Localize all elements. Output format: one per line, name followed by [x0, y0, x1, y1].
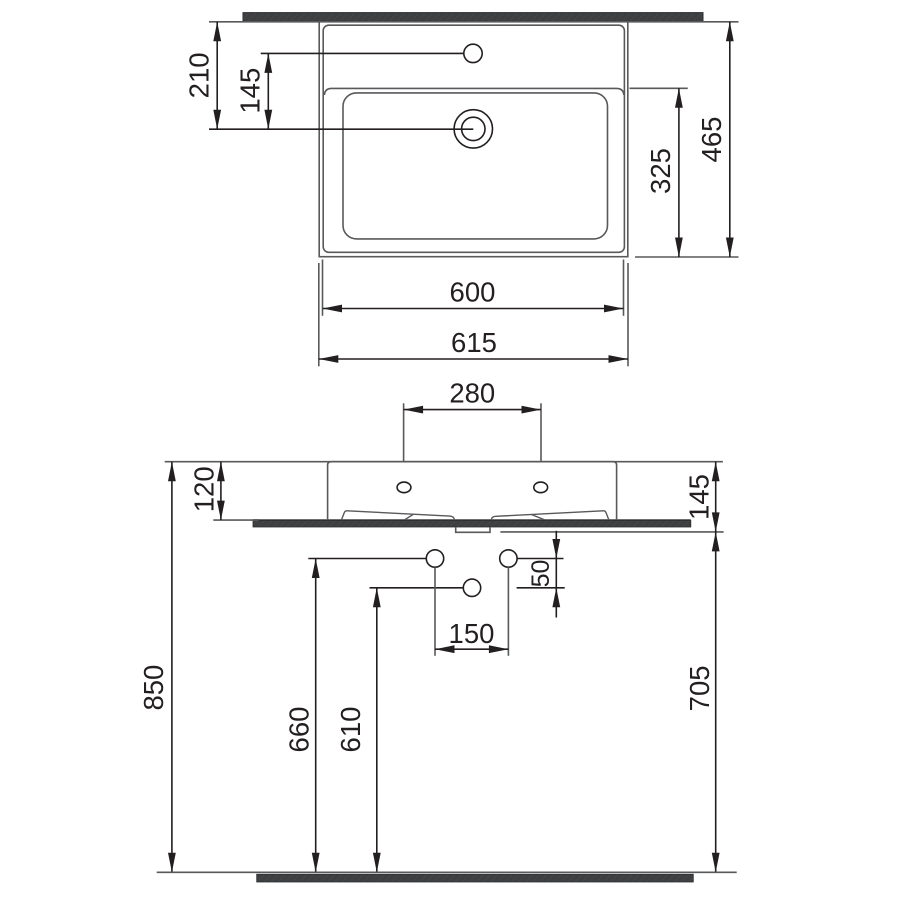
- svg-text:50: 50: [527, 560, 555, 588]
- svg-text:145: 145: [684, 474, 715, 520]
- svg-text:150: 150: [449, 618, 495, 649]
- svg-text:325: 325: [645, 148, 676, 194]
- svg-text:610: 610: [335, 707, 366, 753]
- svg-text:145: 145: [235, 68, 266, 114]
- svg-text:210: 210: [184, 52, 215, 98]
- svg-text:615: 615: [451, 327, 497, 358]
- svg-text:600: 600: [450, 277, 496, 308]
- svg-text:120: 120: [189, 466, 220, 512]
- svg-text:660: 660: [283, 707, 314, 753]
- svg-text:850: 850: [138, 665, 169, 711]
- svg-text:465: 465: [696, 117, 727, 163]
- svg-text:705: 705: [684, 665, 715, 711]
- svg-text:280: 280: [449, 378, 495, 409]
